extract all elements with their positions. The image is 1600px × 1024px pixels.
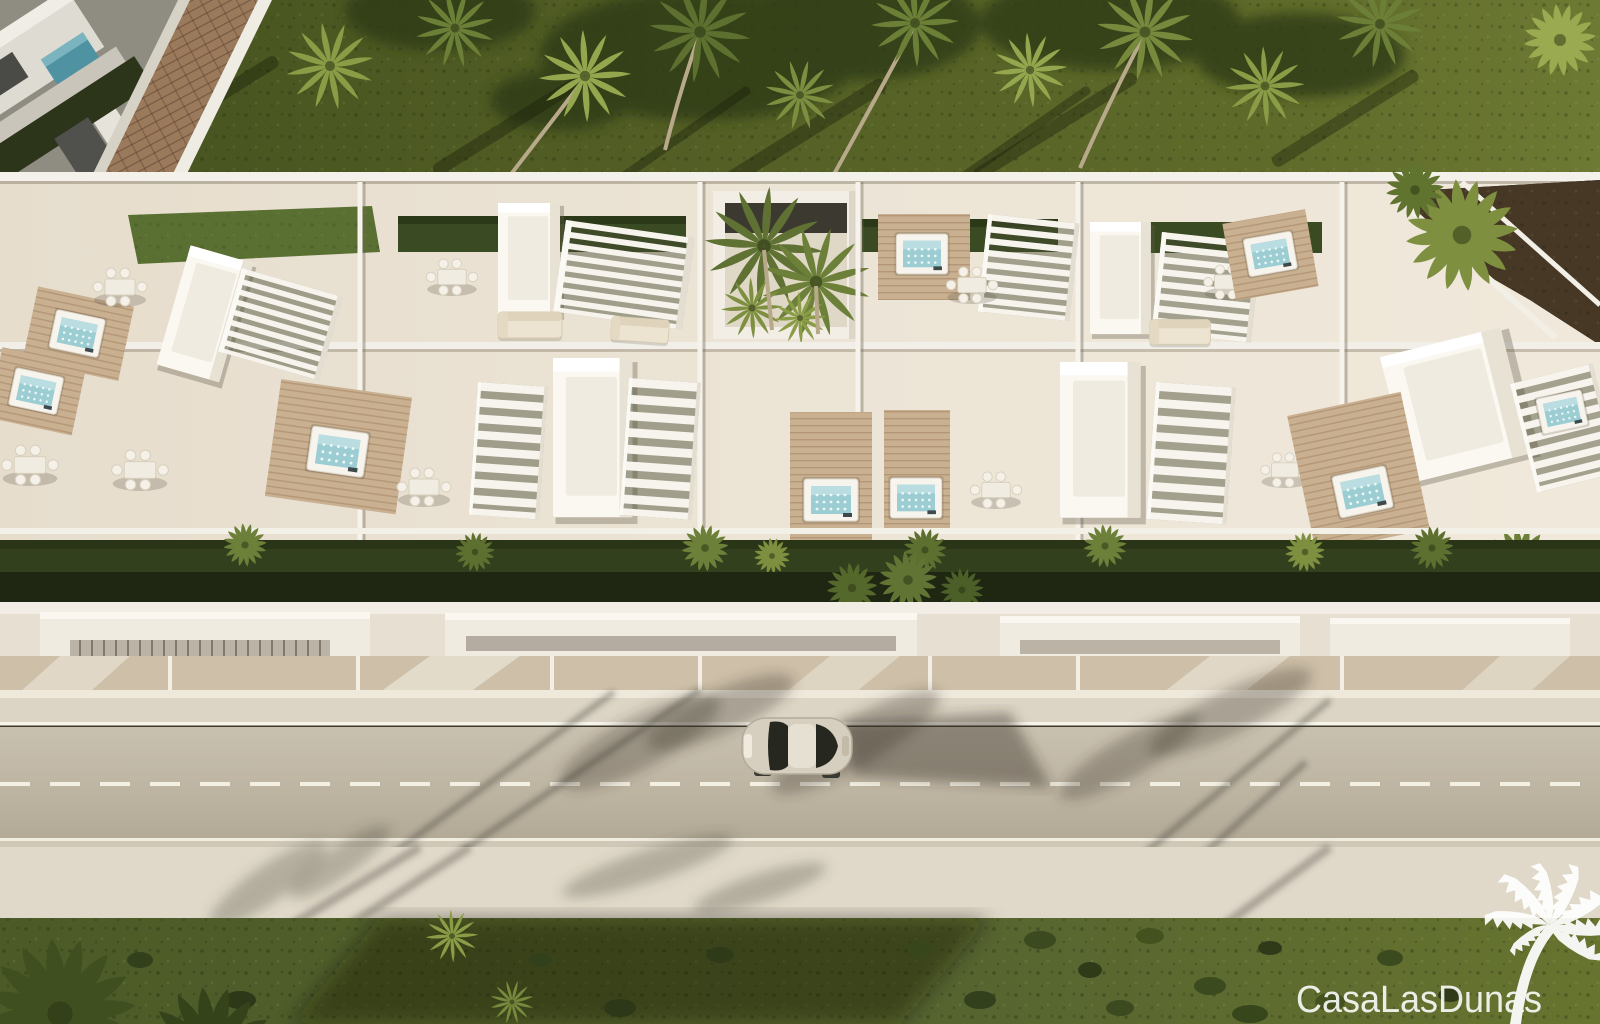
lounge-sofa (498, 312, 562, 341)
pergola-louvre (1146, 382, 1235, 524)
lounge-sofa (1150, 320, 1211, 348)
car-roof (788, 724, 816, 768)
townhouse-complex-roofscape (0, 161, 1600, 592)
street-facade (0, 551, 1600, 698)
stair-tower (498, 203, 564, 320)
top-parapet (0, 172, 1600, 181)
pergola-louvre (619, 378, 700, 520)
pergola-louvre (553, 220, 695, 330)
lounge-sofa (610, 316, 669, 346)
pergola-louvre (978, 214, 1080, 321)
watermark-text: CasaLasDunas (1296, 979, 1542, 1021)
stair-tower (1060, 362, 1146, 524)
canopy-shadow (290, 918, 990, 1024)
lower-hedge-band (0, 523, 1600, 574)
glass-band (0, 656, 1600, 698)
curb (0, 841, 1600, 847)
car-windshield (768, 722, 788, 771)
balcony-volumes (40, 612, 1570, 658)
stair-tower (1090, 222, 1155, 339)
palm-courtyard (697, 179, 881, 354)
pergola-louvre (469, 382, 548, 520)
aerial-render: CasaLasDunas (0, 0, 1600, 1024)
